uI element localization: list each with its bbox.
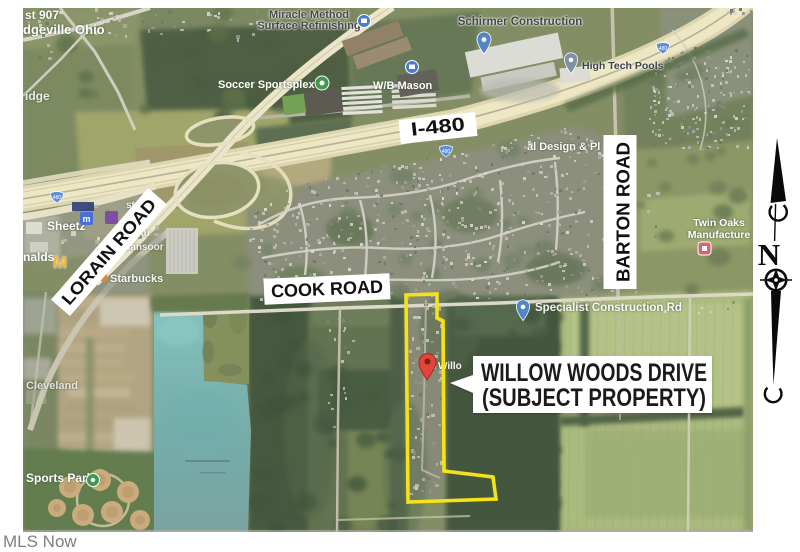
- svg-text:Surface Refinishing: Surface Refinishing: [257, 20, 360, 32]
- svg-text:BARTON ROAD: BARTON ROAD: [614, 142, 634, 282]
- svg-text:(SUBJECT PROPERTY): (SUBJECT PROPERTY): [482, 384, 706, 412]
- svg-text:Specialist Construction Rd: Specialist Construction Rd: [535, 302, 682, 314]
- svg-text:idge: idge: [25, 89, 50, 103]
- svg-text:Twin Oaks: Twin Oaks: [693, 217, 745, 229]
- svg-text:480: 480: [659, 46, 668, 52]
- svg-text:Sports Park: Sports Park: [26, 471, 94, 485]
- svg-text:480: 480: [53, 195, 62, 201]
- svg-text:al Design & Pl: al Design & Pl: [527, 141, 600, 153]
- svg-text:st 907: st 907: [25, 8, 59, 22]
- svg-text:nalds: nalds: [23, 250, 55, 264]
- svg-text:dgeville Ohio: dgeville Ohio: [23, 22, 105, 37]
- svg-text:Sheetz: Sheetz: [47, 219, 86, 233]
- svg-text:Soccer Sportsplex: Soccer Sportsplex: [218, 79, 315, 91]
- svg-text:M: M: [53, 253, 67, 272]
- svg-text:High Tech Pools: High Tech Pools: [582, 60, 664, 72]
- svg-text:480: 480: [442, 149, 451, 155]
- svg-text:Schirmer Construction: Schirmer Construction: [458, 16, 583, 28]
- svg-text:W/B Mason: W/B Mason: [373, 80, 433, 92]
- svg-text:N: N: [758, 237, 780, 272]
- svg-text:Manufacture: Manufacture: [688, 229, 751, 241]
- svg-text:WILLOW WOODS DRIVE: WILLOW WOODS DRIVE: [481, 359, 707, 387]
- svg-text:MLS Now: MLS Now: [3, 532, 77, 551]
- svg-text:Starbucks: Starbucks: [110, 273, 163, 285]
- svg-text:Cleveland: Cleveland: [26, 380, 78, 392]
- svg-text:m: m: [82, 214, 90, 224]
